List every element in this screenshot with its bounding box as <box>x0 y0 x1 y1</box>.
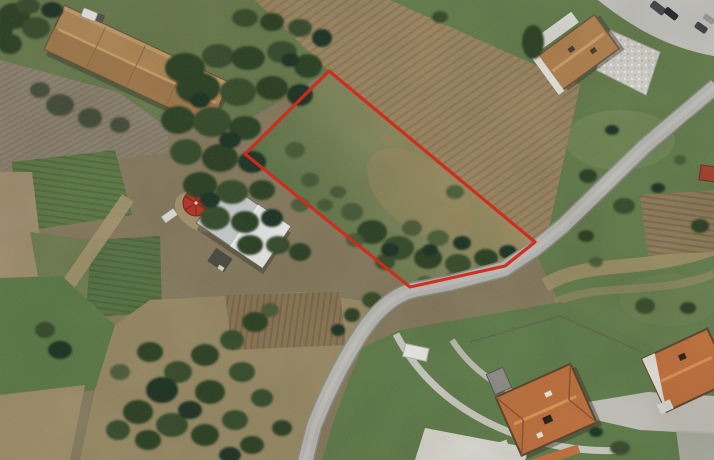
satellite-map <box>0 0 714 460</box>
photo-grain-overlay <box>0 0 714 460</box>
aerial-photo-canvas <box>0 0 714 460</box>
